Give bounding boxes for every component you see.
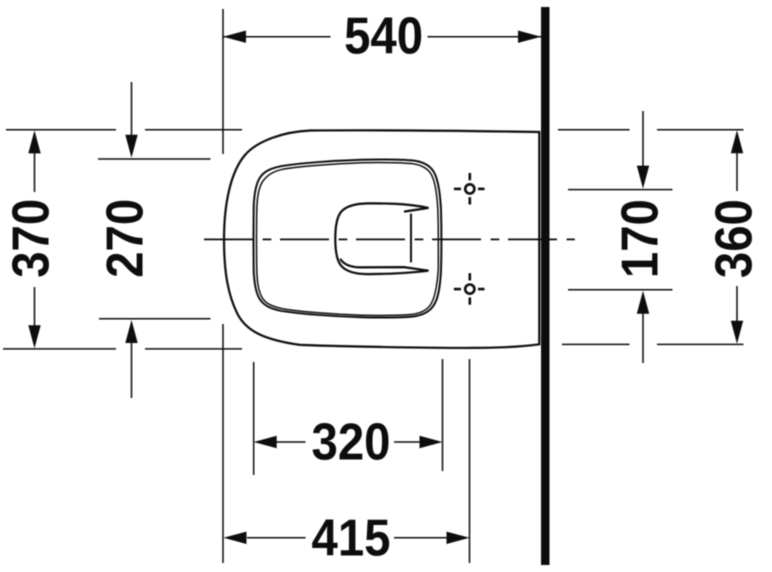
svg-text:370: 370 [2, 199, 60, 278]
svg-text:415: 415 [312, 509, 391, 567]
svg-text:360: 360 [704, 199, 762, 278]
svg-text:170: 170 [611, 199, 669, 278]
svg-text:540: 540 [344, 7, 423, 65]
svg-text:320: 320 [312, 413, 391, 471]
svg-text:270: 270 [96, 199, 154, 278]
